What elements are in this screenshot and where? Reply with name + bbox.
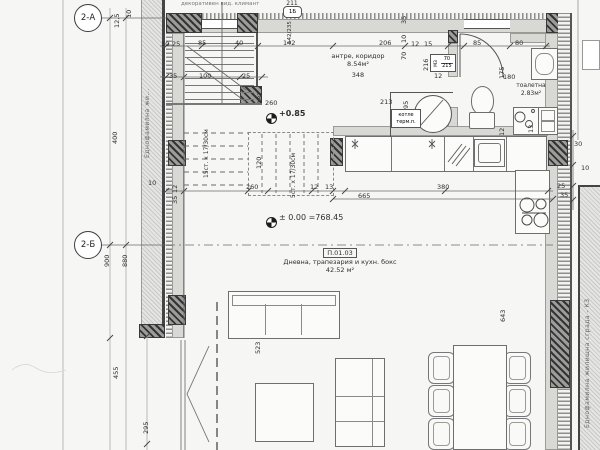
axis-label: 2-А [81,13,95,23]
linework-overlay [0,0,600,450]
neighbor-right-label: Еднофамилна жилищна сграда - К3 [584,238,591,428]
room-label-living: П.01.03 Дневна, трапезария и кухн. бокс … [278,248,402,274]
room-label-hall: антре, коридор 8.54м² 348 [316,52,400,79]
living-name: Дневна, трапезария и кухн. бокс [278,258,402,266]
axis-bubble-2a: 2-А [74,4,102,32]
hall-name: антре, коридор [316,52,400,60]
level-marker-icon [266,113,277,124]
level-value-ground: ± 0.00 =768.45 [279,213,343,223]
door-tag-height: 215 [441,63,453,70]
boiler-label-line2: терм.п. [396,119,415,126]
living-code: П.01.03 [323,248,357,258]
top-note: декоративен вид. климант [181,1,259,8]
stair-flight-label: 5ст. x 17/30см [291,153,297,198]
door-tag-mark: МЗ [434,60,439,67]
wc-name: тоалетна [498,82,564,90]
boiler-label: котле терм.п. [391,109,421,128]
hall-number: 348 [316,71,400,79]
room-label-wc: тоалетна 2.83м² [498,82,564,97]
wc-area: 2.83м² [498,90,564,98]
window-tag-mark: 1Б [283,6,302,18]
hall-area: 8.54м² [316,60,400,68]
living-area: 42.52 м² [278,266,402,274]
level-marker-icon [266,217,277,228]
window-tag-size: 142/235 [288,21,294,44]
axis-bubble-2b: 2-Б [74,231,102,259]
floor-plan-canvas: Еднофамилна жи... Еднофамилна жилищна сг… [0,0,600,450]
stair-flight-label: 15ст. x 17/30см [204,129,210,178]
door-tag-wc: МЗ 70 215 [430,54,456,72]
level-value-upper: +0.85 [279,109,305,119]
axis-label: 2-Б [81,240,95,250]
neighbor-left-label: Еднофамилна жи... [144,8,151,158]
